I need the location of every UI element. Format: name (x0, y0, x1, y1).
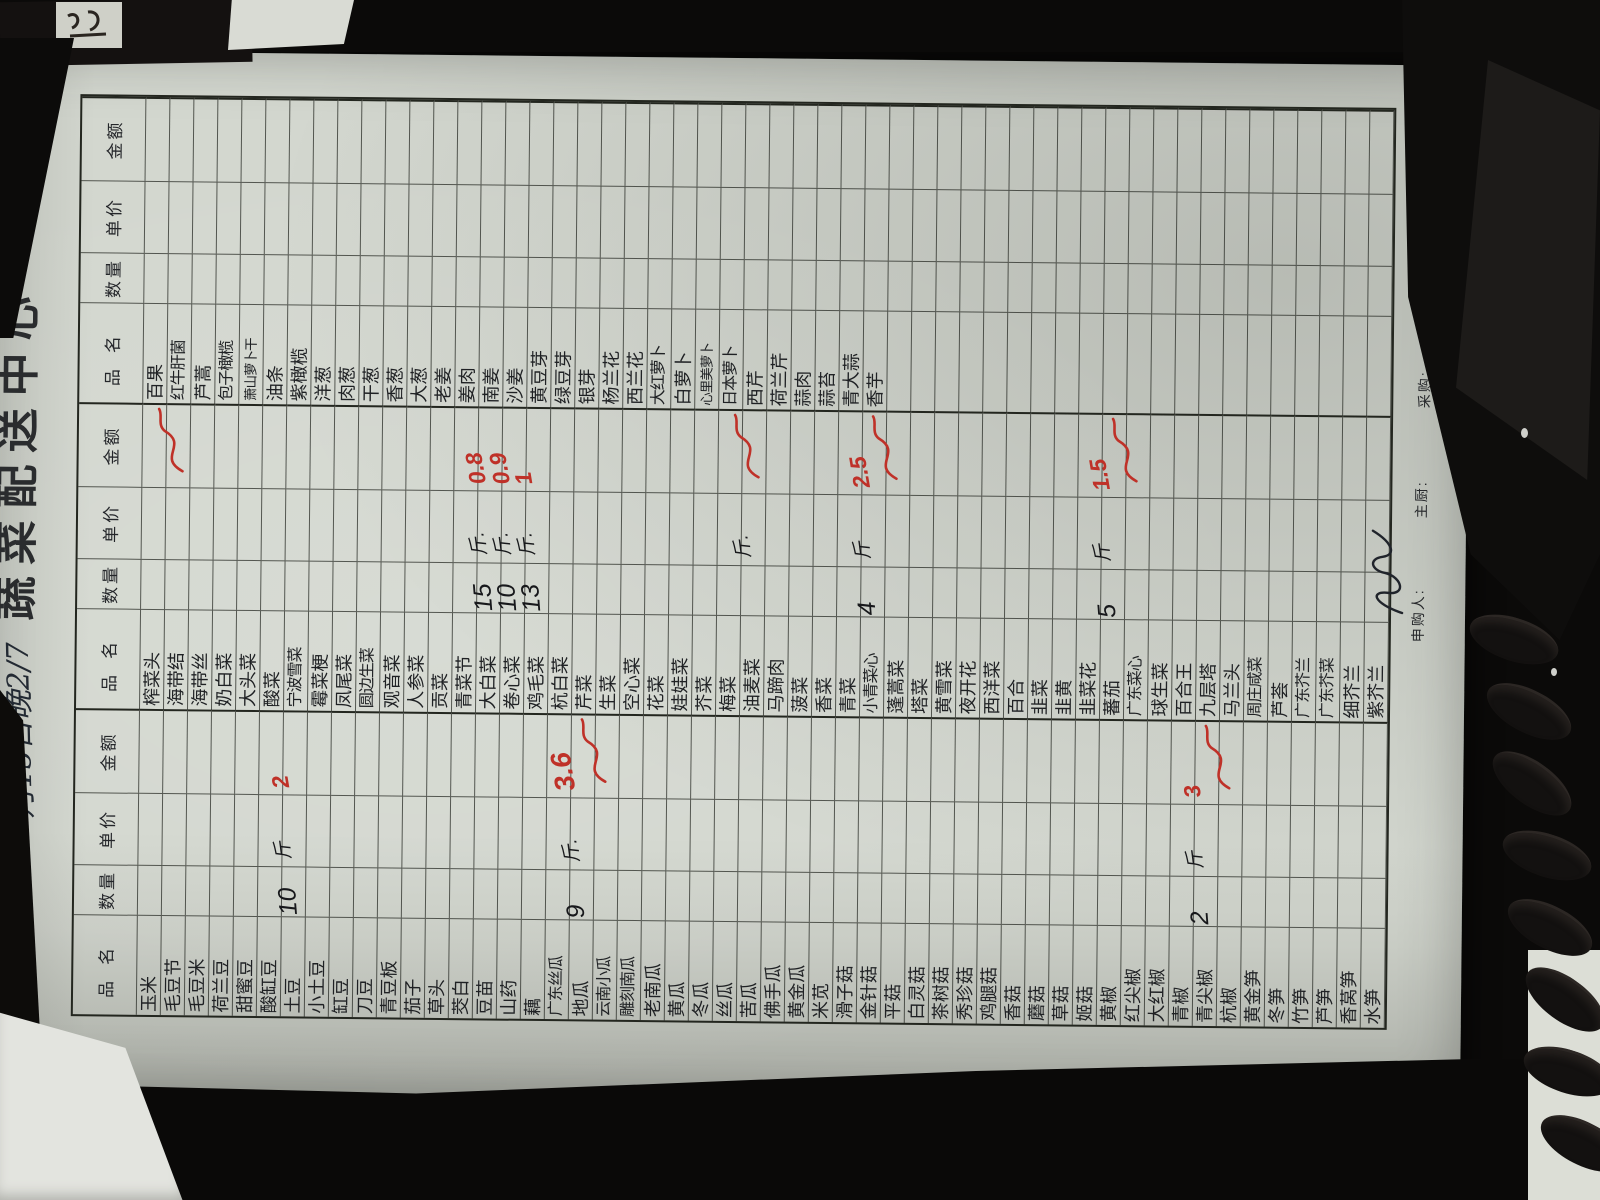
header-cell-金额: 金额 (75, 708, 140, 793)
item-cell: 蕃茄 (1100, 619, 1125, 719)
phone-cord-coil (1478, 671, 1579, 751)
item-cell: 球生菜 (1148, 619, 1173, 719)
item-cell: 茭白 (449, 918, 474, 1018)
empty-cell (1198, 414, 1223, 498)
empty-cell (502, 491, 527, 563)
item-cell: 绿豆芽 (551, 307, 576, 407)
empty-cell (1129, 191, 1154, 263)
empty-cell (594, 798, 619, 870)
empty-cell (595, 714, 620, 798)
empty-cell (1081, 191, 1106, 263)
empty-name-cell (959, 311, 984, 411)
empty-cell (310, 489, 335, 561)
empty-cell (144, 253, 169, 303)
empty-cell (574, 491, 599, 563)
empty-cell (882, 873, 907, 923)
empty-cell (262, 488, 287, 560)
empty-cell (1297, 193, 1322, 265)
item-cell: 宁波雪菜 (284, 610, 309, 710)
empty-name-cell (1295, 315, 1320, 415)
empty-cell (1345, 193, 1370, 265)
empty-cell (1218, 804, 1243, 876)
empty-cell (622, 408, 647, 492)
empty-cell (354, 795, 379, 867)
empty-cell (433, 184, 458, 256)
item-cell: 豆苗 (473, 918, 498, 1018)
item-cell: 黄豆芽 (527, 307, 552, 407)
item-cell: 夜开花 (956, 617, 981, 717)
empty-cell (194, 97, 219, 181)
empty-cell (1126, 497, 1151, 569)
empty-cell (979, 718, 1004, 802)
empty-cell (762, 871, 787, 921)
item-cell: 紫橄榄 (287, 304, 312, 404)
empty-cell (789, 566, 814, 616)
empty-cell (913, 105, 938, 189)
item-cell: 鸡腿菇 (977, 924, 1002, 1024)
empty-cell (906, 873, 931, 923)
empty-cell (360, 255, 385, 305)
empty-cell (1363, 722, 1388, 806)
empty-cell (480, 256, 505, 306)
empty-cell (1122, 875, 1147, 925)
empty-cell (1033, 190, 1058, 262)
empty-cell (166, 403, 191, 487)
item-cell: 圆边生菜 (356, 611, 381, 711)
empty-cell (1176, 264, 1201, 314)
empty-cell (1098, 875, 1123, 925)
signature-squiggle (1362, 527, 1415, 618)
empty-cell (937, 189, 962, 261)
item-cell: 九层塔 (1196, 620, 1221, 720)
empty-cell (1074, 803, 1099, 875)
empty-cell (506, 101, 531, 185)
empty-cell (282, 794, 307, 866)
empty-cell (1051, 718, 1076, 802)
empty-cell (1266, 877, 1291, 927)
empty-cell (1294, 499, 1319, 571)
empty-cell (817, 188, 842, 260)
empty-cell (1269, 571, 1294, 621)
empty-cell (530, 101, 555, 185)
empty-cell (978, 802, 1003, 874)
empty-cell (913, 189, 938, 261)
empty-cell (981, 568, 1006, 618)
empty-cell (1314, 877, 1339, 927)
item-cell: 贡菜 (428, 612, 453, 712)
empty-cell (528, 257, 553, 307)
item-cell: 细芥兰 (1340, 621, 1365, 721)
empty-cell (288, 254, 313, 304)
empty-cell (621, 564, 646, 614)
item-cell: 大红椒 (1145, 925, 1170, 1025)
header-cell-品名: 品名 (79, 302, 144, 403)
item-cell: 白萝卜 (671, 308, 696, 408)
empty-cell (571, 713, 596, 797)
empty-cell (961, 189, 986, 261)
item-cell: 平菇 (881, 923, 906, 1023)
empty-cell (451, 712, 476, 796)
item-cell: 心里美萝卜 (695, 309, 720, 409)
empty-cell (258, 794, 283, 866)
item-cell: 甜蜜豆 (233, 916, 258, 1016)
item-cell: 毛豆节 (161, 915, 186, 1015)
empty-cell (811, 716, 836, 800)
empty-cell (218, 98, 243, 182)
empty-cell (1170, 876, 1195, 926)
item-cell: 黄金笋 (1241, 926, 1266, 1026)
empty-cell (242, 98, 267, 182)
empty-cell (1174, 498, 1199, 570)
empty-name-cell (1319, 315, 1344, 415)
empty-cell (289, 182, 314, 254)
empty-cell (738, 799, 763, 871)
empty-cell (406, 490, 431, 562)
empty-cell (214, 404, 239, 488)
empty-cell (672, 258, 697, 308)
empty-cell (1224, 264, 1249, 314)
empty-cell (1338, 877, 1363, 927)
item-cell: 蓬蒿菜 (884, 617, 909, 717)
empty-cell (1078, 413, 1103, 497)
empty-cell (216, 254, 241, 304)
empty-cell (1054, 412, 1079, 496)
item-cell: 娃娃菜 (668, 614, 693, 714)
empty-cell (763, 715, 788, 799)
empty-cell (766, 409, 791, 493)
empty-cell (1099, 719, 1124, 803)
item-cell: 油条 (263, 304, 288, 404)
empty-name-cell (1175, 314, 1200, 414)
empty-cell (266, 98, 291, 182)
empty-cell (910, 411, 935, 495)
empty-cell (1270, 415, 1295, 499)
item-cell: 人参菜 (404, 612, 429, 712)
item-cell: 广东芥菜 (1316, 621, 1341, 721)
empty-cell (674, 102, 699, 186)
empty-cell (841, 104, 866, 188)
empty-cell (1290, 805, 1315, 877)
empty-cell (597, 564, 622, 614)
empty-cell (1339, 721, 1364, 805)
empty-cell (189, 559, 214, 609)
empty-name-cell (1127, 313, 1152, 413)
empty-name-cell (1223, 314, 1248, 414)
empty-cell (696, 259, 721, 309)
empty-cell (742, 409, 767, 493)
empty-cell (1342, 415, 1367, 499)
empty-cell (1318, 415, 1343, 499)
empty-cell (241, 182, 266, 254)
empty-cell (646, 408, 671, 492)
empty-cell (793, 188, 818, 260)
empty-cell (259, 710, 284, 794)
empty-cell (1057, 190, 1082, 262)
empty-cell (285, 560, 310, 610)
empty-cell (169, 181, 194, 253)
empty-cell (838, 494, 863, 566)
item-cell: 藕 (521, 919, 546, 1019)
empty-cell (163, 709, 188, 793)
empty-cell (889, 105, 914, 189)
item-cell: 老姜 (431, 306, 456, 406)
empty-cell (1026, 802, 1051, 874)
empty-cell (1222, 498, 1247, 570)
empty-cell (427, 712, 452, 796)
empty-cell (1249, 108, 1274, 192)
glint (1551, 668, 1557, 676)
empty-cell (1056, 262, 1081, 312)
empty-cell (145, 181, 170, 253)
empty-cell (1006, 412, 1031, 496)
empty-name-cell (1199, 314, 1224, 414)
empty-cell (742, 493, 767, 565)
empty-cell (910, 495, 935, 567)
empty-cell (673, 186, 698, 258)
item-cell: 白灵菇 (905, 923, 930, 1023)
empty-name-cell (935, 311, 960, 411)
empty-cell (1123, 719, 1148, 803)
empty-cell (721, 187, 746, 259)
empty-cell (694, 409, 719, 493)
empty-cell (694, 493, 719, 565)
empty-cell (1050, 874, 1075, 924)
empty-cell (502, 407, 527, 491)
item-cell: 沙姜 (503, 307, 528, 407)
item-cell: 青大蒜 (839, 310, 864, 410)
empty-cell (1314, 805, 1339, 877)
item-cell: 韭黄 (1052, 618, 1077, 718)
empty-cell (478, 406, 503, 490)
empty-cell (1194, 876, 1219, 926)
empty-cell (403, 712, 428, 796)
empty-name-cell (1343, 315, 1368, 415)
empty-cell (814, 494, 839, 566)
empty-cell (382, 489, 407, 561)
empty-cell (1369, 110, 1394, 194)
empty-cell (648, 258, 673, 308)
empty-cell (1075, 719, 1100, 803)
item-cell: 奶白菜 (212, 610, 237, 710)
empty-cell (1033, 106, 1058, 190)
empty-cell (1102, 413, 1127, 497)
empty-cell (1197, 570, 1222, 620)
empty-cell (264, 254, 289, 304)
empty-cell (529, 185, 554, 257)
empty-cell (139, 709, 164, 793)
empty-cell (1344, 265, 1369, 315)
item-cell: 香葱 (383, 305, 408, 405)
item-cell: 广东芥兰 (1292, 621, 1317, 721)
empty-cell (1029, 568, 1054, 618)
empty-cell (1273, 109, 1298, 193)
empty-cell (1345, 109, 1370, 193)
empty-cell (358, 405, 383, 489)
empty-cell (1027, 718, 1052, 802)
empty-cell (482, 100, 507, 184)
empty-cell (1318, 499, 1343, 571)
glint (1521, 428, 1528, 438)
empty-cell (386, 99, 411, 183)
empty-cell (690, 799, 715, 871)
item-cell: 西洋菜 (980, 618, 1005, 718)
empty-cell (1074, 875, 1099, 925)
empty-cell (1122, 803, 1147, 875)
item-cell: 姬菇 (1073, 925, 1098, 1025)
empty-cell (714, 871, 739, 921)
empty-cell (745, 187, 770, 259)
empty-cell (286, 404, 311, 488)
item-cell: 红牛肝菌 (167, 303, 192, 403)
header-cell-品名: 品名 (73, 914, 138, 1015)
empty-cell (1246, 414, 1271, 498)
empty-cell (1153, 191, 1178, 263)
empty-cell (522, 797, 547, 869)
empty-cell (265, 182, 290, 254)
empty-cell (1146, 803, 1171, 875)
empty-cell (669, 564, 694, 614)
item-cell: 秀珍菇 (953, 923, 978, 1023)
header-cell-金额: 金额 (82, 96, 147, 181)
item-cell: 百合 (1004, 618, 1029, 718)
empty-cell (142, 487, 167, 559)
empty-cell (546, 797, 571, 869)
empty-name-cell (1151, 313, 1176, 413)
empty-cell (456, 256, 481, 306)
empty-cell (314, 99, 339, 183)
empty-cell (1105, 107, 1130, 191)
empty-cell (646, 492, 671, 564)
empty-cell (650, 102, 675, 186)
item-cell: 蒜苔 (815, 310, 840, 410)
empty-cell (429, 562, 454, 612)
empty-cell (1030, 496, 1055, 568)
empty-cell (357, 561, 382, 611)
empty-cell (458, 100, 483, 184)
empty-cell (333, 561, 358, 611)
empty-cell (362, 99, 387, 183)
item-cell: 蒜肉 (791, 310, 816, 410)
item-cell: 茄子 (401, 918, 426, 1018)
empty-cell (282, 866, 307, 916)
empty-cell (283, 710, 308, 794)
order-form-paper: 蔬菜配送中心 月15日晚2/7 品名数量单价金额品名数量单价金额品名数量单价金额… (0, 50, 1471, 1106)
item-cell: 芹菜 (572, 613, 597, 713)
empty-cell (1009, 106, 1034, 190)
empty-cell (306, 795, 331, 867)
empty-cell (1267, 721, 1292, 805)
empty-cell (238, 404, 263, 488)
item-cell: 水笋 (1361, 928, 1386, 1028)
item-cell: 杨兰花 (599, 308, 624, 408)
empty-cell (384, 255, 409, 305)
empty-cell (1177, 108, 1202, 192)
empty-cell (1129, 107, 1154, 191)
empty-cell (957, 567, 982, 617)
empty-cell (146, 97, 171, 181)
empty-cell (1174, 414, 1199, 498)
empty-cell (885, 567, 910, 617)
empty-cell (741, 565, 766, 615)
empty-cell (361, 183, 386, 255)
empty-cell (432, 256, 457, 306)
empty-cell (1296, 265, 1321, 315)
empty-cell (1125, 569, 1150, 619)
empty-cell (816, 260, 841, 310)
empty-cell (690, 871, 715, 921)
empty-cell (670, 492, 695, 564)
empty-cell (888, 261, 913, 311)
empty-cell (883, 717, 908, 801)
empty-cell (546, 869, 571, 919)
empty-name-cell (911, 311, 936, 411)
empty-cell (858, 872, 883, 922)
empty-cell (192, 253, 217, 303)
empty-cell (576, 257, 601, 307)
empty-cell (450, 796, 475, 868)
empty-cell (1153, 107, 1178, 191)
header-cell-单价: 单价 (81, 180, 146, 253)
item-cell: 塔菜 (908, 617, 933, 717)
empty-cell (618, 870, 643, 920)
empty-cell (1150, 413, 1175, 497)
empty-cell (213, 560, 238, 610)
empty-cell (889, 189, 914, 261)
empty-cell (1101, 569, 1126, 619)
empty-cell (666, 798, 691, 870)
empty-cell (619, 714, 644, 798)
empty-cell (936, 261, 961, 311)
empty-cell (382, 405, 407, 489)
item-cell: 香芋 (863, 310, 888, 410)
empty-cell (792, 260, 817, 310)
empty-cell (258, 866, 283, 916)
empty-cell (840, 260, 865, 310)
empty-cell (765, 565, 790, 615)
empty-cell (309, 561, 334, 611)
empty-cell (337, 183, 362, 255)
empty-cell (1222, 414, 1247, 498)
empty-cell (769, 187, 794, 259)
empty-cell (1195, 720, 1220, 804)
empty-cell (1177, 192, 1202, 264)
item-cell: 酸菜 (260, 610, 285, 710)
empty-cell (1150, 497, 1175, 569)
item-cell: 广东菜心 (1124, 619, 1149, 719)
item-cell: 青菜 (836, 616, 861, 716)
empty-cell (1321, 109, 1346, 193)
empty-cell (358, 489, 383, 561)
empty-cell (290, 98, 315, 182)
empty-cell (769, 103, 794, 187)
empty-cell (931, 717, 956, 801)
item-cell: 油麦菜 (740, 615, 765, 715)
empty-cell (1248, 264, 1273, 314)
empty-cell (214, 488, 239, 560)
empty-cell (1171, 720, 1196, 804)
item-cell: 芦笋 (1313, 927, 1338, 1027)
empty-cell (550, 407, 575, 491)
empty-cell (430, 406, 455, 490)
empty-cell (624, 258, 649, 308)
empty-cell (1057, 106, 1082, 190)
empty-cell (645, 564, 670, 614)
empty-cell (237, 560, 262, 610)
empty-cell (141, 559, 166, 609)
empty-cell (1173, 570, 1198, 620)
empty-cell (523, 713, 548, 797)
empty-cell (937, 105, 962, 189)
